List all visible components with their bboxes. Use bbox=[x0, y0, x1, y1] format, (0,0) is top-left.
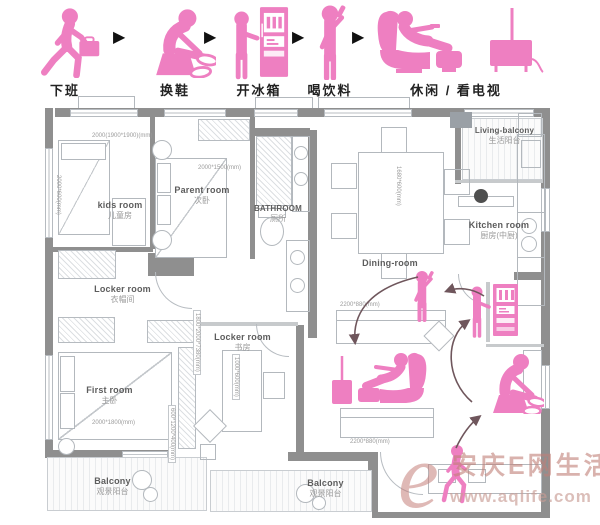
step-label-change-shoes: 换鞋 bbox=[145, 80, 205, 99]
wardrobe bbox=[58, 317, 115, 343]
wall bbox=[372, 512, 550, 518]
figure-walking-icon bbox=[438, 444, 476, 506]
chair bbox=[331, 213, 357, 239]
wall bbox=[296, 325, 304, 453]
room-label-locker: Locker room 衣帽间 bbox=[85, 284, 160, 305]
side-table bbox=[152, 230, 172, 250]
dim-kids-left: 2000*600(mm) bbox=[55, 175, 61, 215]
step-arrow-icon: ▶ bbox=[292, 30, 304, 46]
step-label-open-fridge: 开冰箱 bbox=[222, 80, 296, 99]
window bbox=[254, 109, 298, 117]
dim-sofa-bottom: 2200*880(mm) bbox=[350, 439, 390, 445]
room-label-balcony-mid: Balcony 观景阳台 bbox=[293, 478, 358, 499]
figure-drink-icon bbox=[406, 270, 440, 322]
recliner-icon bbox=[372, 4, 477, 76]
door-arc bbox=[155, 272, 192, 309]
step-label-leisure-tv: 休闲 / 看电视 bbox=[386, 80, 526, 99]
figure-tv-icon bbox=[330, 354, 354, 406]
window bbox=[70, 109, 138, 117]
tv-cabinet-edge bbox=[340, 408, 434, 418]
room-label-parent: Parent room 次卧 bbox=[163, 185, 241, 206]
step-label-drink: 喝饮料 bbox=[292, 80, 368, 99]
figure-recliner-icon bbox=[356, 348, 431, 406]
walk-briefcase-icon bbox=[28, 6, 108, 78]
entry-door-arc bbox=[380, 452, 423, 495]
sink bbox=[290, 278, 305, 293]
pot bbox=[474, 189, 488, 203]
room-label-balcony-left: Balcony 观景阳台 bbox=[80, 476, 145, 497]
room-label-kitchen: Kitchen room 厨房(中厨) bbox=[460, 220, 538, 241]
chair bbox=[444, 169, 470, 195]
wall bbox=[288, 452, 378, 461]
dim-desk: 1000*600(mm) bbox=[232, 354, 240, 400]
dim-wardrobe: 1800*2000*7380(mm) bbox=[193, 310, 201, 375]
wall bbox=[255, 128, 310, 136]
tv-icon bbox=[482, 4, 544, 76]
step-label-off-work: 下班 bbox=[35, 80, 95, 99]
room-label-kids: kids room 儿童房 bbox=[85, 200, 155, 221]
pillow bbox=[61, 143, 106, 160]
drink-beverage-icon bbox=[306, 4, 354, 80]
window bbox=[164, 109, 226, 117]
chair bbox=[331, 163, 357, 189]
side-table bbox=[152, 140, 172, 160]
window bbox=[45, 148, 53, 238]
open-fridge-icon bbox=[228, 4, 290, 80]
step-arrow-icon: ▶ bbox=[352, 30, 364, 46]
floorplan-infographic: ▶ ▶ bbox=[0, 0, 600, 525]
window bbox=[324, 109, 412, 117]
figure-change-shoes-icon bbox=[478, 352, 544, 414]
dim-kids-top: 2000(1900*1900)(mm) bbox=[92, 133, 152, 139]
wardrobe bbox=[58, 250, 116, 279]
step-arrow-icon: ▶ bbox=[113, 30, 125, 46]
room-label-study: Locker room 书房 bbox=[205, 332, 280, 353]
plant bbox=[143, 487, 158, 502]
figure-open-fridge-icon bbox=[462, 282, 524, 340]
sink bbox=[294, 172, 308, 186]
wardrobe bbox=[147, 320, 194, 343]
shower bbox=[256, 136, 292, 206]
step-arrow-icon: ▶ bbox=[204, 30, 216, 46]
dining-table bbox=[358, 152, 444, 254]
dim-sofa-top: 2200*880(mm) bbox=[340, 302, 380, 308]
dim-parent: 2000*1500(mm) bbox=[198, 165, 241, 171]
room-label-bathroom: BATHROOM 厕所 bbox=[250, 204, 306, 224]
dim-first-side: 600*1200*400(mm) bbox=[168, 405, 176, 463]
wardrobe bbox=[198, 119, 250, 141]
plant bbox=[58, 438, 75, 455]
sink bbox=[294, 146, 308, 160]
room-label-dining: Dining-room bbox=[353, 258, 427, 269]
chair bbox=[381, 127, 407, 153]
room-label-living-balcony: Living-balcony 生活阳台 bbox=[462, 126, 547, 146]
wall bbox=[486, 344, 544, 347]
dim-first: 2000*1800(mm) bbox=[92, 420, 135, 426]
desk bbox=[222, 350, 262, 432]
sink bbox=[290, 250, 305, 265]
floor-lamp bbox=[200, 444, 216, 460]
window bbox=[45, 355, 53, 440]
dim-dining: 1680*600(mm) bbox=[395, 166, 401, 206]
room-label-first: First room 主卧 bbox=[72, 385, 147, 406]
wall bbox=[250, 117, 255, 259]
chair bbox=[263, 372, 285, 399]
